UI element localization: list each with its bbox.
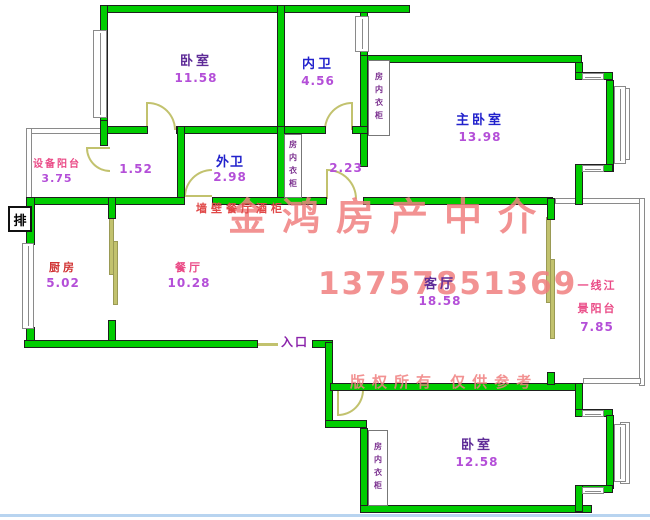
room-label: 主卧室 [420,114,540,129]
bay-wall [606,415,614,489]
wall-bedroom-bottom [360,505,592,513]
room-area: 12.58 [427,456,527,470]
room-bedroom-bottom: 卧室 12.58 [427,439,527,470]
sliding-door [114,242,117,304]
room-area: 11.58 [146,72,246,86]
wall [360,428,368,512]
watermark-cabinet-note: 墙壁餐厅酒柜 [196,200,286,216]
room-river-view-balcony: 一线江 景阳台 7.85 [557,280,637,335]
bay-window [614,86,626,164]
room-label: 卧室 [427,439,527,454]
sliding-door [110,216,113,274]
room-label-line1: 一线江 [557,280,637,293]
room-label-line2: 景阳台 [557,303,637,316]
drain-shaft: 排 [8,206,32,232]
wardrobe-master: 房内衣柜 [368,60,390,136]
room-label: 客厅 [390,278,490,293]
bay-window [582,487,604,494]
wall-mid [28,197,185,205]
room-area: 4.56 [268,75,368,89]
room-outer-bath: 外卫 2.98 [190,156,270,185]
bay-window [582,73,604,80]
hallway-1: 1.52 [106,161,166,177]
bay-wall [606,80,614,172]
bottom-edge [0,514,650,517]
balcony-wall [639,198,645,386]
wall-bottom [24,340,258,348]
room-label: 外卫 [190,156,270,171]
wall-master-top [360,55,582,63]
room-dining: 餐厅 10.28 [149,262,229,290]
balcony-wall [555,198,645,204]
room-equipment-balcony: 设备阳台 3.75 [16,159,98,185]
door-arc [338,390,364,416]
room-area: 5.02 [23,277,103,291]
wall [177,126,185,198]
wall [108,197,116,219]
room-area: 18.58 [390,295,490,309]
hallway-2: 2.23 [316,160,376,176]
window [93,30,107,118]
room-master-bedroom: 主卧室 13.98 [420,114,540,145]
bay-window [582,165,604,172]
room-area: 2.23 [316,162,376,176]
bay-window [582,410,604,417]
door-arc [148,102,176,130]
balcony-wall [583,378,641,384]
room-area: 10.28 [149,277,229,291]
room-area: 7.85 [557,321,637,335]
bay-window [614,424,626,482]
room-area: 13.98 [420,131,540,145]
wall [325,420,367,428]
wall [100,120,108,146]
wardrobe-bedroom-bottom: 房内衣柜 [368,430,388,506]
room-label: 厨房 [23,262,103,275]
wall [352,126,368,134]
room-living: 客厅 18.58 [390,278,490,309]
entry-threshold [258,343,278,346]
wall [547,372,555,385]
room-kitchen: 厨房 5.02 [23,262,103,290]
room-area: 1.52 [106,163,166,177]
window [355,16,369,52]
wall [176,126,326,134]
door-arc [324,102,352,130]
room-label: 卧室 [146,55,246,70]
entrance-label: 入口 [276,336,314,350]
room-area: 3.75 [16,173,98,186]
balcony-wall [26,128,106,134]
room-label: 内卫 [268,58,368,73]
room-inner-bath: 内卫 4.56 [268,58,368,89]
floor-plan: 房内衣柜 房内衣柜 房内衣柜 排 金鸿房产中介 13757851369 墙壁餐厅… [0,0,650,520]
room-bedroom-top: 卧室 11.58 [146,55,246,86]
room-label: 餐厅 [149,262,229,275]
watermark-copyright: 版权所有 仅供参考 [350,371,538,392]
room-label: 设备阳台 [16,159,98,171]
room-area: 2.98 [190,171,270,185]
